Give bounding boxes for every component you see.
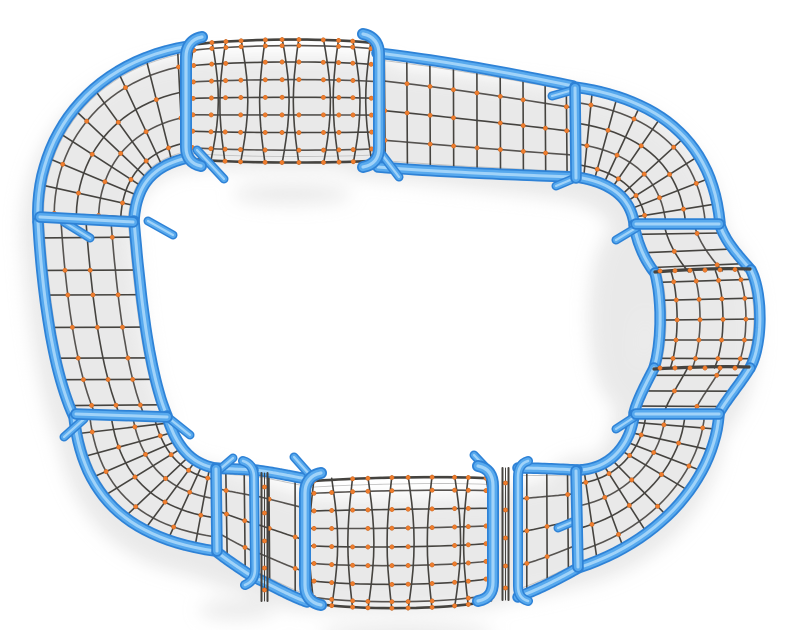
render-canvas [0, 0, 790, 630]
playground-structure-render [0, 0, 790, 630]
